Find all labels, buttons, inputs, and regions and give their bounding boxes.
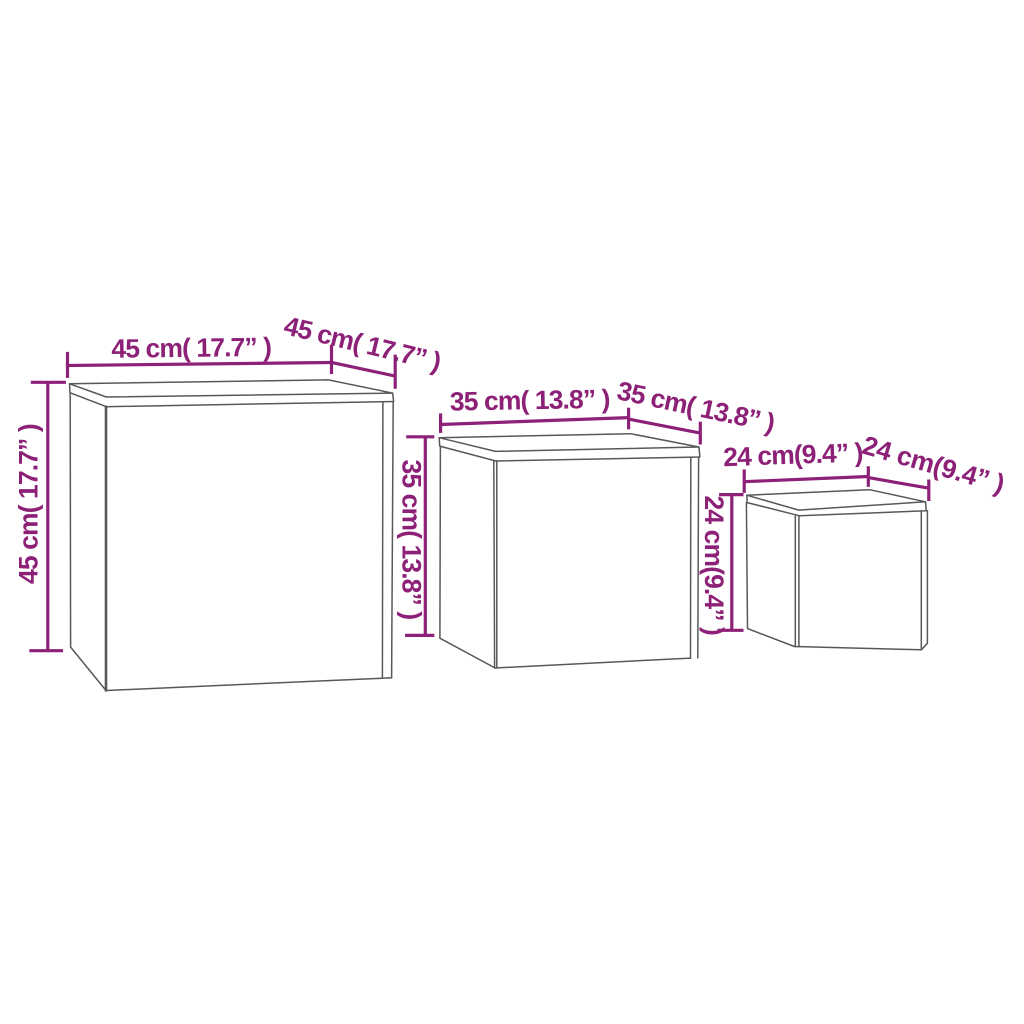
- svg-text:45 cm( 17.7” ): 45 cm( 17.7” ): [14, 424, 44, 584]
- svg-text:35 cm( 13.8” ): 35 cm( 13.8” ): [396, 460, 426, 620]
- svg-text:35 cm( 13.8” ): 35 cm( 13.8” ): [450, 384, 610, 417]
- svg-text:24 cm(9.4” ): 24 cm(9.4” ): [723, 437, 863, 472]
- svg-text:24 cm(9.4” ): 24 cm(9.4” ): [699, 496, 729, 636]
- svg-text:45 cm( 17.7” ): 45 cm( 17.7” ): [111, 332, 271, 364]
